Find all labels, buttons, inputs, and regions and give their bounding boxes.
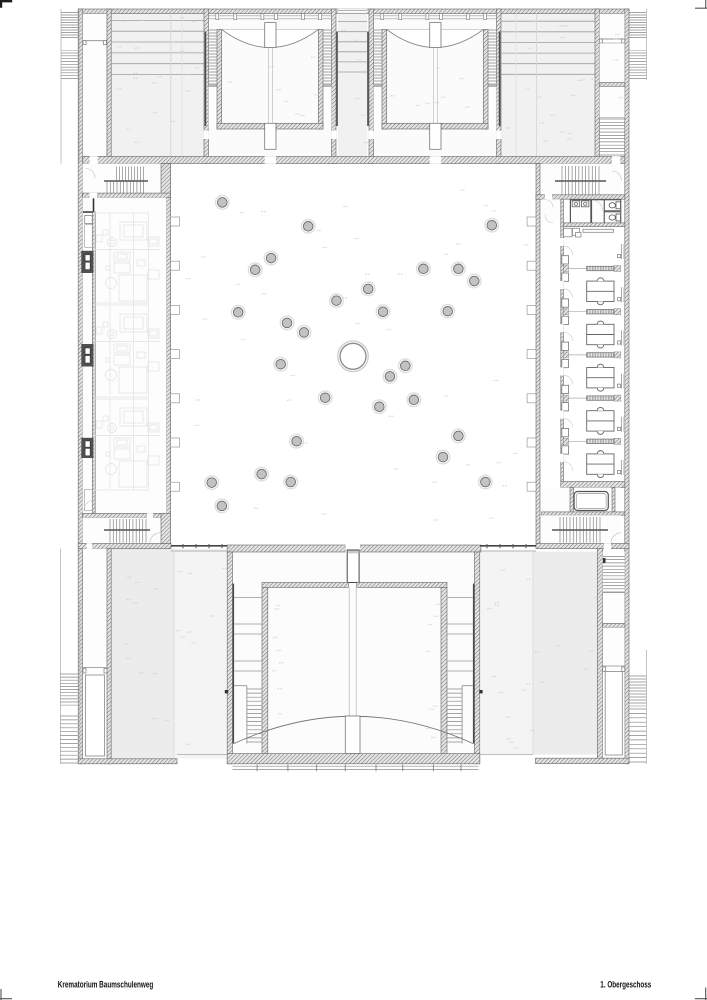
svg-text:1. Obergeschoss: 1. Obergeschoss [600,980,651,990]
svg-text:Krematorium Baumschulenweg: Krematorium Baumschulenweg [58,980,154,990]
